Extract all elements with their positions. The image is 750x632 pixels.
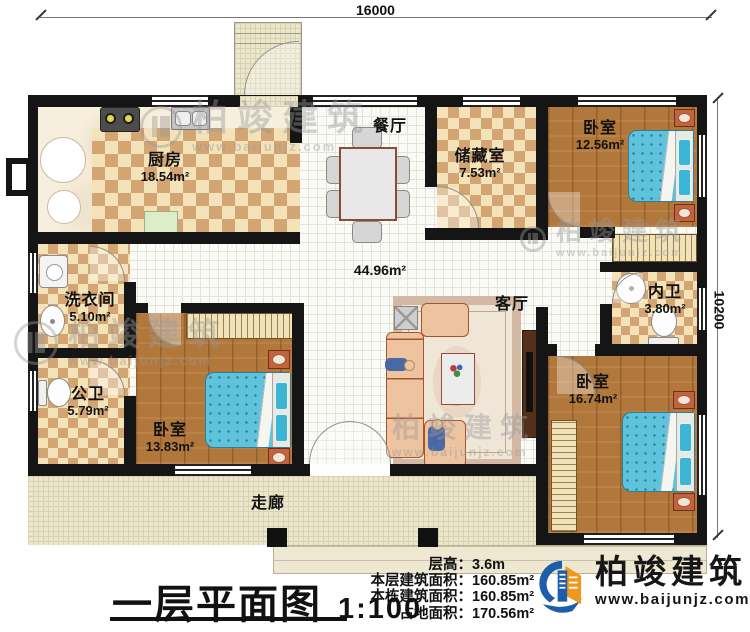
room-label-kitchen: 厨房 18.54m² [115, 152, 215, 184]
sink-basin [175, 111, 191, 126]
washing-machine [39, 255, 68, 288]
bed-bottom-left [205, 372, 291, 448]
stat-row-floor-height: 层高： 3.6m [350, 557, 534, 573]
chimney [6, 158, 32, 196]
dimension-tick [35, 9, 46, 20]
room-label-corridor: 走廊 [238, 495, 298, 513]
room-label-inner-bath: 内卫 3.80m² [632, 284, 698, 316]
dimension-top-label: 16000 [356, 2, 395, 18]
round-table-large [40, 137, 86, 183]
wall-bedroom-bl-top-stub [136, 303, 148, 313]
building-stats: 层高： 3.6m 本层建筑面积： 160.85m² 本栋建筑面积： 160.85… [350, 557, 534, 622]
open-area-label: 44.96m² [335, 263, 425, 279]
wall-inner-bath-left-stub [600, 262, 612, 272]
drawing-title-text: 一层平面图 [112, 572, 322, 630]
wardrobe-top-right [612, 234, 697, 262]
person-figure [428, 426, 445, 451]
room-label-bedroom-bottom-left: 卧室 13.83m² [130, 422, 210, 454]
window-bedroom-br-bottom [584, 533, 674, 545]
person-figure [385, 358, 408, 371]
wall-bedroom-br-top [595, 344, 697, 356]
nightstand [673, 493, 695, 511]
wall-divider-lower [536, 307, 548, 545]
brand-logo-icon [536, 555, 588, 622]
nightstand [674, 109, 695, 127]
wall-inner-bath-top [600, 262, 697, 272]
window-inner-bath-right [697, 288, 707, 330]
wall-storage-bottom [425, 228, 548, 240]
brand-site: www.baijunjz.com [595, 591, 750, 608]
wall-bedroom-bl-top [181, 303, 304, 313]
porch-column [418, 528, 438, 547]
window-bedroom-bl-bottom [175, 464, 251, 476]
pillow [679, 423, 692, 452]
pillow [678, 169, 691, 196]
toilet-tank [38, 380, 47, 406]
title-underline [110, 617, 347, 621]
armchair [421, 303, 469, 337]
window-laundry-left [28, 253, 38, 293]
kitchen-sink [171, 107, 210, 130]
wall-bedroom-tr-bottom [580, 227, 615, 238]
stat-row-floor-area: 本层建筑面积： 160.85m² [350, 573, 534, 589]
wall-bottom-mid [390, 464, 548, 476]
room-label-living: 客厅 [482, 296, 542, 314]
room-label-laundry: 洗衣间 5.10m² [50, 292, 130, 324]
window-bedroom-tr-right [697, 135, 707, 197]
room-label-bedroom-top-right: 卧室 12.56m² [560, 120, 640, 152]
porch-column [267, 528, 287, 547]
dining-chair [352, 221, 382, 243]
wall-bedroom-br-top-stub [548, 344, 557, 356]
back-porch-step-line [234, 33, 302, 34]
stat-row-land-area: 占地面积： 170.56m² [350, 606, 534, 622]
round-table-small [47, 190, 81, 224]
nightstand [674, 204, 695, 222]
dining-table [339, 147, 397, 221]
brand-name: 柏竣建筑 [595, 555, 750, 588]
sofa-main [386, 332, 424, 458]
wall-bedroom-bl-right [292, 303, 304, 464]
nightstand [268, 350, 290, 369]
kitchen-cabinet [144, 211, 178, 234]
pillow [275, 382, 288, 410]
window-kitchen-top [152, 95, 208, 107]
wall-inner-bath-left [600, 304, 612, 344]
room-label-bedroom-bottom-right: 卧室 16.74m² [548, 374, 638, 406]
bed-bottom-right [622, 412, 695, 492]
wall-bottom-left [28, 464, 310, 476]
wardrobe-bottom-right [551, 420, 577, 532]
dimension-tick [705, 9, 716, 20]
brand-block: 柏竣建筑 www.baijunjz.com [536, 555, 750, 622]
stove [100, 107, 140, 132]
dimension-right-label: 10200 [711, 291, 727, 330]
side-table [394, 306, 418, 330]
window-bedroom-br-right [697, 415, 707, 495]
sink-basin [192, 111, 207, 126]
room-label-public-bath: 公卫 5.79m² [48, 386, 128, 418]
window-bedroom-tr-top [578, 95, 676, 107]
nightstand [673, 391, 695, 409]
dimension-tick [712, 529, 723, 540]
window-dining-top [313, 95, 417, 107]
floor-plan-canvas: 16000 10200 [0, 0, 750, 632]
pillow [275, 414, 288, 442]
back-door-opening [240, 96, 298, 107]
pillow [679, 457, 692, 486]
window-public-bath-left [28, 371, 38, 411]
wall-divider-upper [536, 95, 548, 232]
dimension-tick [712, 92, 723, 103]
burner-icon [105, 113, 116, 124]
wall-kitchen-bottom [28, 232, 300, 244]
tv-icon [526, 352, 533, 412]
flower-centerpiece [448, 362, 466, 380]
stat-row-building-area: 本栋建筑面积： 160.85m² [350, 589, 534, 605]
wardrobe-bottom-left [186, 313, 294, 339]
room-label-dining: 餐厅 [355, 118, 425, 136]
window-storage-top [463, 95, 520, 107]
wall-laundry-divider [28, 348, 136, 358]
room-label-storage: 储藏室 7.53m² [430, 148, 530, 180]
burner-icon [123, 113, 134, 124]
pillow [678, 139, 691, 166]
